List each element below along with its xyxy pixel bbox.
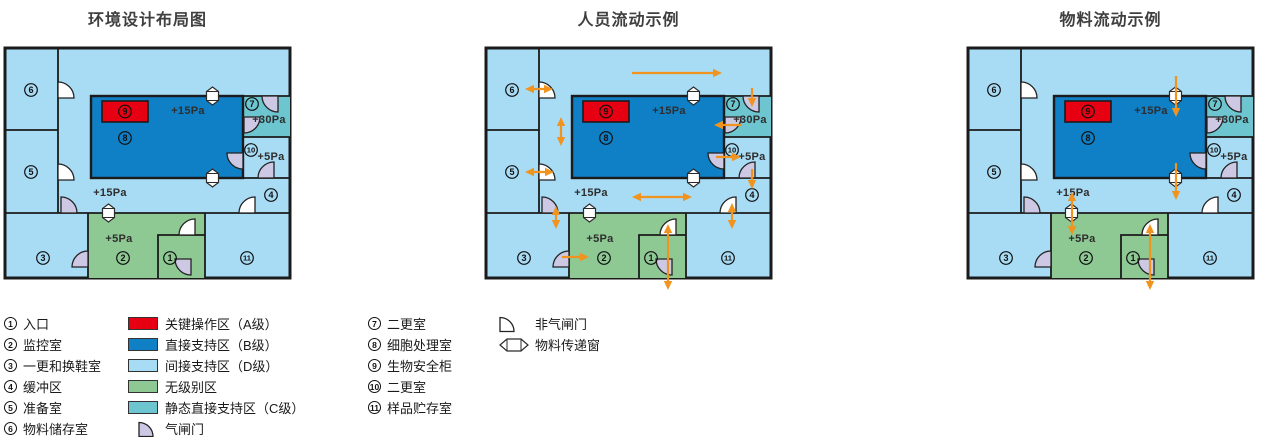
svg-text:7: 7 — [730, 99, 735, 109]
svg-text:3: 3 — [1003, 253, 1008, 263]
svg-text:3: 3 — [521, 253, 526, 263]
legend-number-badge: 10 — [368, 380, 381, 393]
legend-label: 气闸门 — [165, 419, 204, 437]
legend-swatch-teal — [128, 401, 158, 414]
transfer-window-corridor-room2 — [584, 204, 596, 222]
transfer-window-room8-bottom — [688, 169, 700, 187]
legend-column-rooms-1: 1入口2监控室3一更和换鞋室4缓冲区5准备室6物料储存室 — [4, 313, 101, 437]
svg-text:7: 7 — [1212, 99, 1217, 109]
svg-text:4: 4 — [268, 190, 273, 200]
legend-label: 直接支持区（B级） — [165, 335, 278, 354]
svg-text:5: 5 — [991, 167, 996, 177]
legend-label: 静态直接支持区（C级） — [165, 398, 304, 417]
legend-label: 样品贮存室 — [387, 398, 452, 417]
svg-text:8: 8 — [1085, 133, 1090, 143]
floorplan: 6 5 3 2 1 11 8 9 7 10 4 +15Pa +30Pa +5Pa… — [966, 46, 1255, 296]
pressure-room10: +5Pa — [257, 151, 285, 163]
legend-column-zones: 关键操作区（A级）直接支持区（B级）间接支持区（D级）无级别区静态直接支持区（C… — [128, 313, 304, 437]
legend-number-badge: 6 — [4, 422, 17, 435]
pressure-room8: +15Pa — [652, 105, 686, 117]
transfer-window-room8-bottom — [207, 169, 219, 187]
svg-text:10: 10 — [1210, 146, 1218, 155]
legend-label: 生物安全柜 — [387, 356, 452, 375]
legend-item: 9生物安全柜 — [368, 355, 452, 376]
pressure-room10: +5Pa — [1220, 151, 1248, 163]
legend-label: 间接支持区（D级） — [165, 356, 278, 375]
pressure-room8: +15Pa — [1134, 105, 1168, 117]
svg-text:10: 10 — [247, 146, 255, 155]
legend-item: 气闸门 — [128, 418, 304, 437]
legend-number-badge: 5 — [4, 401, 17, 414]
svg-text:4: 4 — [1231, 190, 1236, 200]
pressure-room8: +15Pa — [171, 105, 205, 117]
floorplan: 6 5 3 2 1 11 8 9 7 10 4 +15Pa +30Pa +5Pa… — [484, 46, 773, 296]
legend-number-badge: 9 — [368, 359, 381, 372]
entrance-flow-arrowhead — [1146, 281, 1154, 290]
legend-item: 6物料储存室 — [4, 418, 101, 437]
pressure-corridor: +15Pa — [574, 187, 608, 199]
panel-layout-plan: 6 5 3 2 1 11 8 9 7 10 4 +15Pa +30Pa +5Pa… — [3, 46, 292, 301]
svg-text:11: 11 — [1206, 254, 1215, 263]
pressure-room7: +30Pa — [1215, 114, 1249, 126]
zones — [968, 48, 1253, 278]
legend-item: 2监控室 — [4, 334, 101, 355]
legend-number-badge: 3 — [4, 359, 17, 372]
legend-label: 二更室 — [387, 314, 426, 333]
legend-label: 监控室 — [23, 335, 62, 354]
transfer-window-room8-top — [688, 87, 700, 105]
legend-item: 1入口 — [4, 313, 101, 334]
pressure-room10: +5Pa — [738, 151, 766, 163]
legend-swatch-red — [128, 317, 158, 330]
legend-item: 7二更室 — [368, 313, 452, 334]
legend-item: 静态直接支持区（C级） — [128, 397, 304, 418]
svg-text:1: 1 — [648, 253, 653, 263]
legend-item: 3一更和换鞋室 — [4, 355, 101, 376]
legend-item: 无级别区 — [128, 376, 304, 397]
legend-swatch-blue — [128, 338, 158, 351]
legend-item: 4缓冲区 — [4, 376, 101, 397]
legend-number-badge: 1 — [4, 317, 17, 330]
svg-text:9: 9 — [603, 107, 608, 117]
svg-text:2: 2 — [601, 253, 606, 263]
legend-item: 11样品贮存室 — [368, 397, 452, 418]
svg-text:1: 1 — [167, 253, 172, 263]
svg-text:6: 6 — [28, 85, 33, 95]
legend-label: 准备室 — [23, 398, 62, 417]
legend-item: 5准备室 — [4, 397, 101, 418]
svg-text:9: 9 — [122, 107, 127, 117]
svg-text:1: 1 — [1130, 253, 1135, 263]
legend-label: 关键操作区（A级） — [165, 314, 278, 333]
transfer-window-icon — [498, 337, 530, 353]
svg-text:5: 5 — [509, 167, 514, 177]
floorplan: 6 5 3 2 1 11 8 9 7 10 4 +15Pa +30Pa +5Pa… — [3, 46, 292, 296]
svg-text:11: 11 — [243, 254, 252, 263]
svg-text:8: 8 — [603, 133, 608, 143]
legend-label: 入口 — [23, 314, 49, 333]
pressure-corridor: +15Pa — [93, 187, 127, 199]
transfer-window-room8-top — [207, 87, 219, 105]
legend-label: 缓冲区 — [23, 377, 62, 396]
legend-number-badge: 8 — [368, 338, 381, 351]
zones — [486, 48, 771, 278]
legend-number-badge: 11 — [368, 401, 381, 414]
pressure-room2: +5Pa — [586, 233, 614, 245]
entrance-flow-arrowhead — [664, 281, 672, 290]
legend-column-rooms-2: 7二更室8细胞处理室9生物安全柜10二更室11样品贮存室 — [368, 313, 452, 418]
legend-number-badge: 4 — [4, 380, 17, 393]
panel-title-material: 物料流动示例 — [968, 6, 1253, 30]
airlock-door-icon — [137, 420, 156, 437]
non-airlock-door-icon — [498, 315, 517, 333]
legend-item: 物料传递窗 — [498, 334, 600, 355]
legend-number-badge: 7 — [368, 317, 381, 330]
legend-item: 间接支持区（D级） — [128, 355, 304, 376]
legend-item: 10二更室 — [368, 376, 452, 397]
legend-label: 细胞处理室 — [387, 335, 452, 354]
panel-material-plan: 6 5 3 2 1 11 8 9 7 10 4 +15Pa +30Pa +5Pa… — [966, 46, 1255, 301]
panel-title-layout: 环境设计布局图 — [5, 6, 290, 30]
transfer-window-corridor-room2 — [103, 204, 115, 222]
legend-label: 一更和换鞋室 — [23, 356, 101, 375]
legend-label: 无级别区 — [165, 377, 217, 396]
zones — [5, 48, 290, 278]
svg-text:3: 3 — [40, 253, 45, 263]
legend-swatch-green — [128, 380, 158, 393]
panel-personnel-plan: 6 5 3 2 1 11 8 9 7 10 4 +15Pa +30Pa +5Pa… — [484, 46, 773, 301]
svg-text:4: 4 — [749, 190, 754, 200]
svg-text:9: 9 — [1085, 107, 1090, 117]
legend-label: 物料传递窗 — [535, 335, 600, 354]
svg-text:6: 6 — [991, 85, 996, 95]
legend-label: 非气闸门 — [535, 314, 587, 333]
legend-item: 关键操作区（A级） — [128, 313, 304, 334]
legend-swatch-lightblue — [128, 359, 158, 372]
cleanroom-layout-figure: 环境设计布局图 人员流动示例 物料流动示例 — [0, 0, 1264, 437]
svg-text:5: 5 — [28, 167, 33, 177]
legend-label: 物料储存室 — [23, 419, 88, 437]
legend-item: 8细胞处理室 — [368, 334, 452, 355]
pressure-room7: +30Pa — [252, 114, 286, 126]
panel-title-personnel: 人员流动示例 — [486, 6, 771, 30]
pressure-room2: +5Pa — [105, 233, 133, 245]
legend-column-symbols: 非气闸门物料传递窗 — [498, 313, 600, 355]
svg-text:7: 7 — [249, 99, 254, 109]
legend-number-badge: 2 — [4, 338, 17, 351]
svg-text:11: 11 — [724, 254, 733, 263]
pressure-room2: +5Pa — [1068, 233, 1096, 245]
legend-item: 直接支持区（B级） — [128, 334, 304, 355]
svg-text:6: 6 — [509, 85, 514, 95]
svg-text:2: 2 — [120, 253, 125, 263]
svg-text:8: 8 — [122, 133, 127, 143]
svg-text:2: 2 — [1083, 253, 1088, 263]
legend-item: 非气闸门 — [498, 313, 600, 334]
legend-label: 二更室 — [387, 377, 426, 396]
